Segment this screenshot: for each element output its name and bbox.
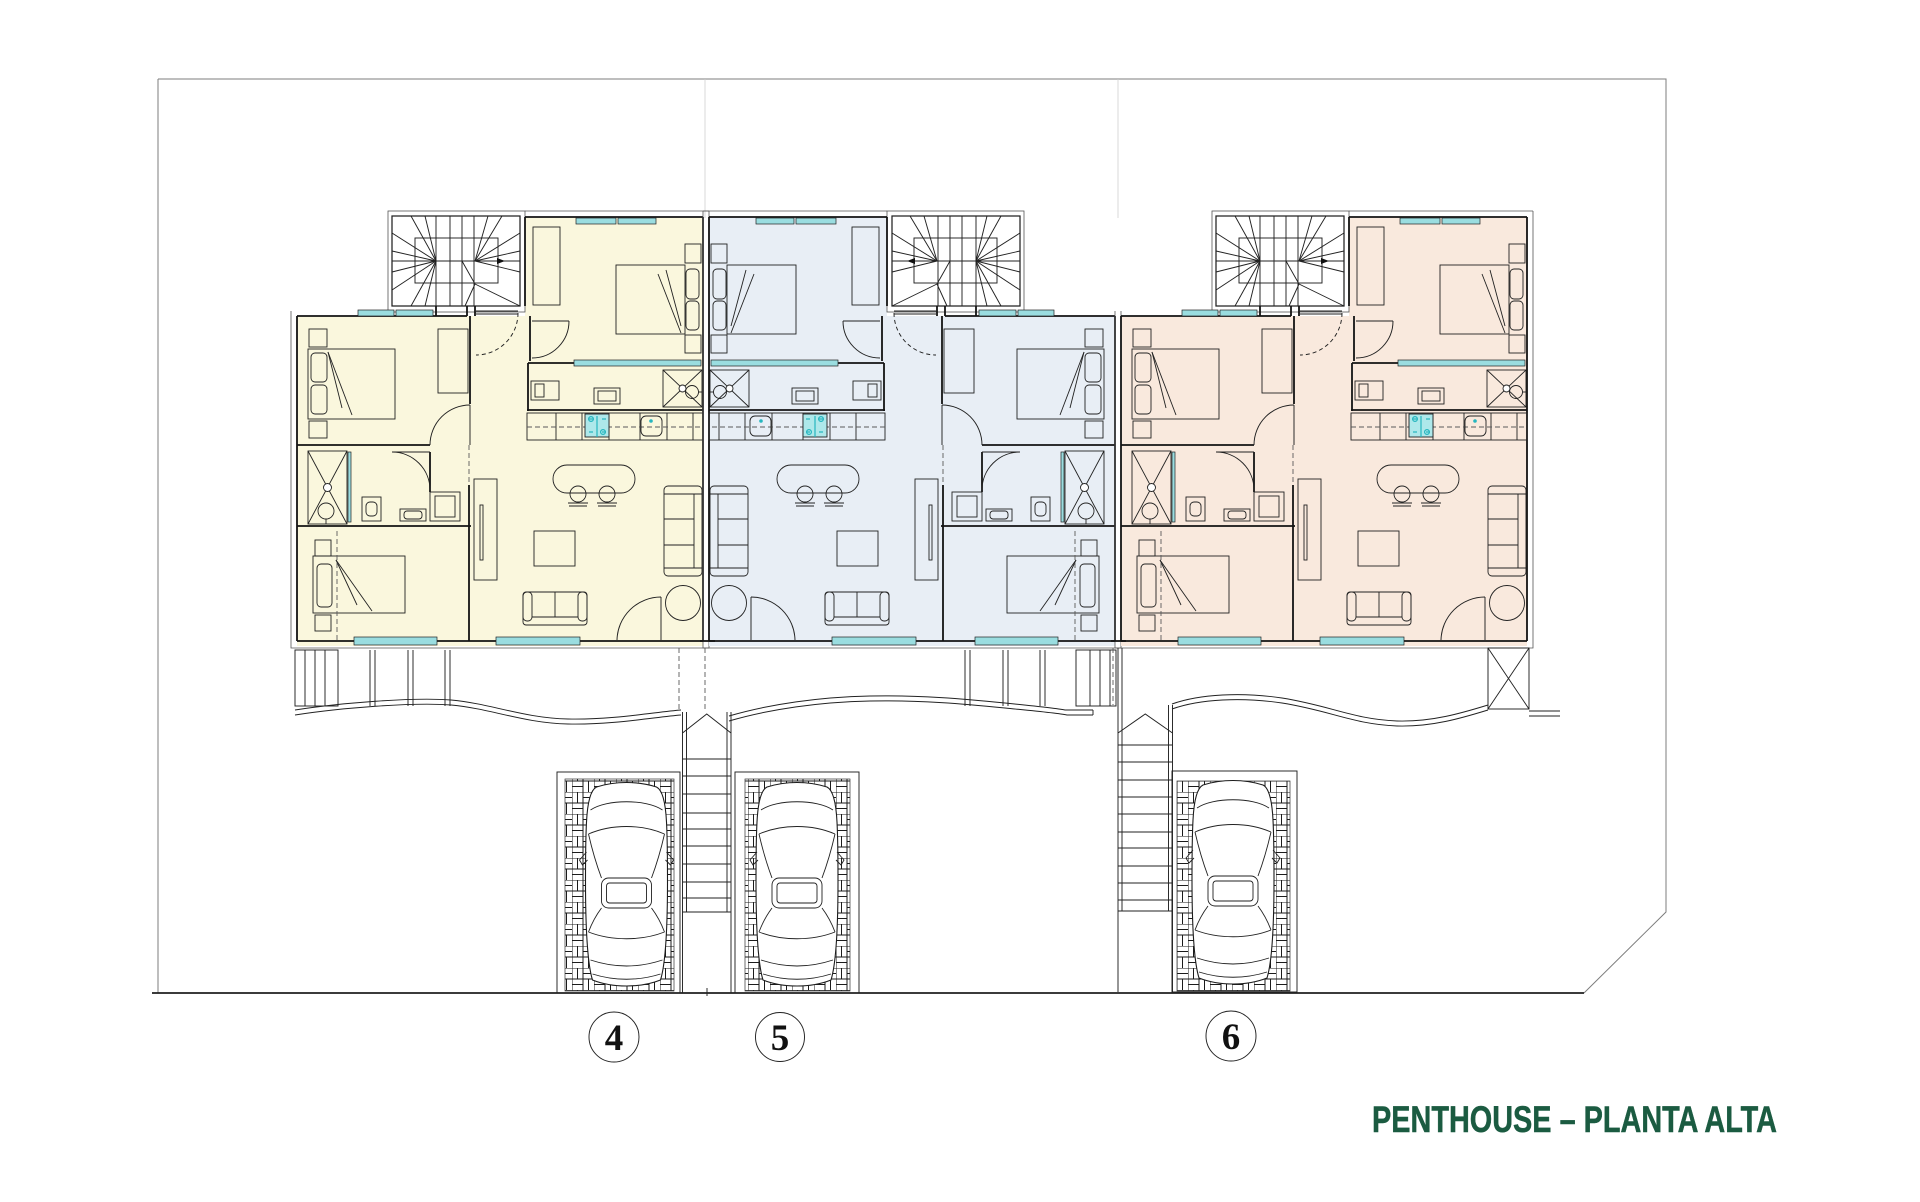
svg-text:4: 4 [605,1018,624,1059]
svg-text:6: 6 [1222,1017,1241,1058]
svg-text:PENTHOUSE – PLANTA ALTA: PENTHOUSE – PLANTA ALTA [1372,1099,1777,1140]
svg-text:5: 5 [771,1018,790,1059]
